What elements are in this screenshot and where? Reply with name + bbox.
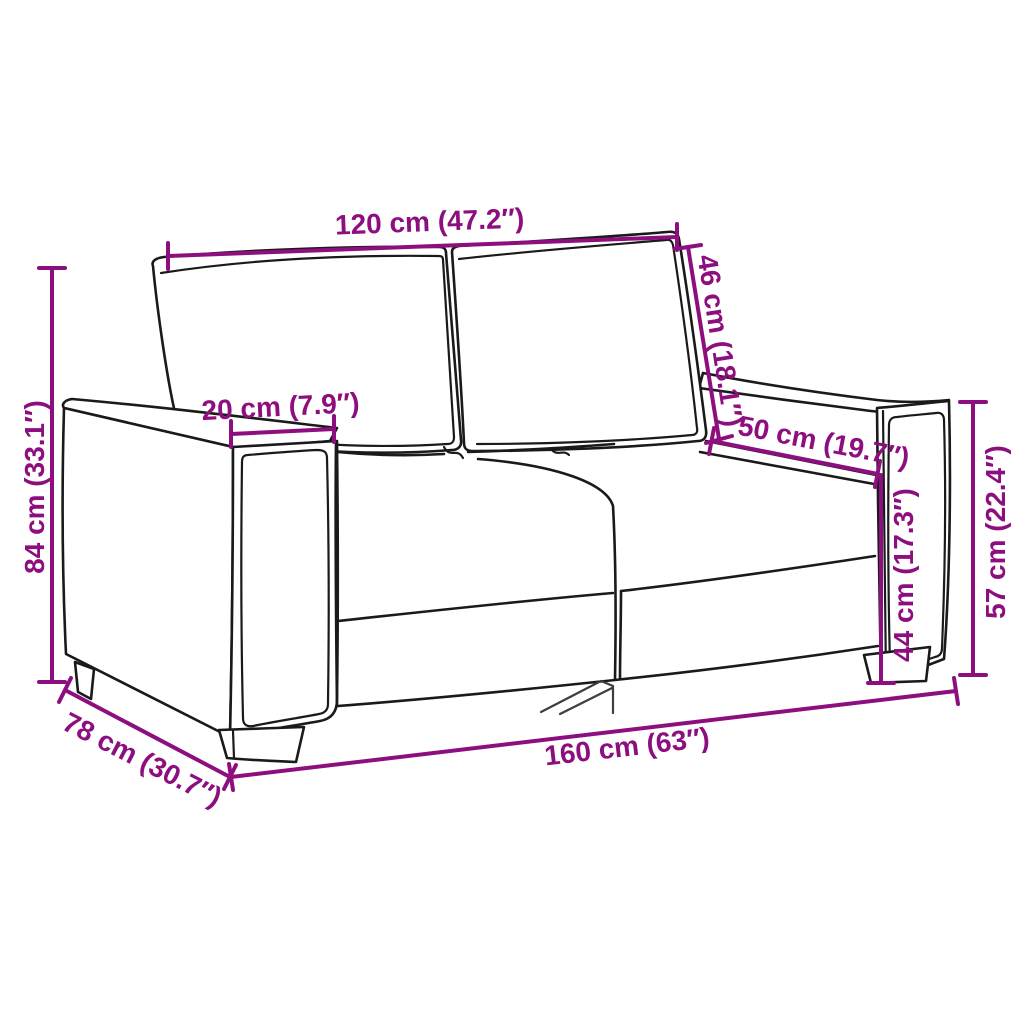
seat-cushion-right-front-edge — [620, 591, 621, 678]
dimension-arm-height: 57 cm (22.4″) — [960, 402, 1011, 675]
seat-left-edge — [336, 444, 337, 706]
left-back-foot — [75, 662, 94, 699]
dimension-label-arm-height: 57 cm (22.4″) — [980, 445, 1011, 619]
dimension-label-back-width: 120 cm (47.2″) — [334, 202, 524, 240]
left-front-foot-seam — [233, 731, 234, 758]
sofa-seat — [336, 441, 878, 714]
seat-front-seam-left — [338, 593, 613, 621]
seat-bottom-edge — [338, 646, 878, 706]
seat-front-seam-right — [621, 556, 875, 591]
sofa-dimension-drawing: 120 cm (47.2″) 46 cm (18.1″) 20 cm (7.9″… — [0, 0, 1024, 1024]
sofa-drawing — [63, 232, 950, 762]
left-arm-inner-face — [230, 441, 338, 737]
left-front-foot — [219, 727, 304, 762]
dimension-diagram: 120 cm (47.2″) 46 cm (18.1″) 20 cm (7.9″… — [0, 0, 1024, 1024]
dimension-seat-height: 44 cm (17.3″) — [868, 475, 919, 683]
dimension-overall-height: 84 cm (33.1″) — [19, 268, 65, 682]
back-cushion-right — [452, 232, 706, 451]
sofa-left-arm — [63, 399, 338, 762]
dimension-label-overall-height: 84 cm (33.1″) — [19, 400, 50, 574]
dimension-label-seat-height: 44 cm (17.3″) — [888, 488, 919, 662]
seat-cushion-divider — [478, 459, 616, 679]
